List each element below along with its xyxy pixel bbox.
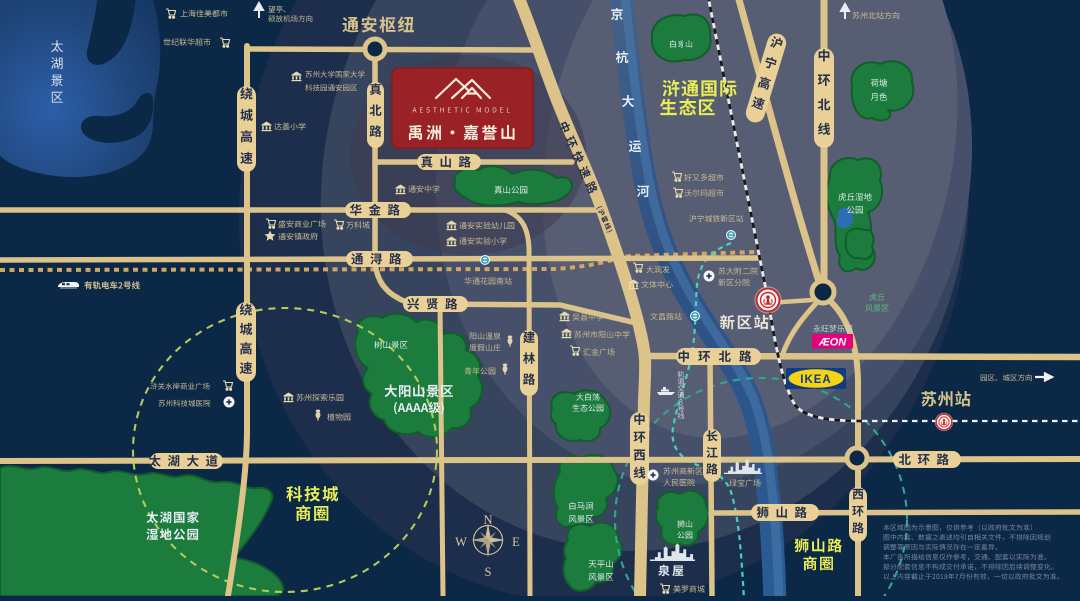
svg-text:N: N xyxy=(483,513,492,527)
svg-text:W: W xyxy=(455,535,467,549)
svg-text:S: S xyxy=(485,565,492,579)
svg-text:E: E xyxy=(512,535,520,549)
svg-text:IKEA: IKEA xyxy=(800,374,831,386)
svg-text:ÆON: ÆON xyxy=(818,337,848,349)
